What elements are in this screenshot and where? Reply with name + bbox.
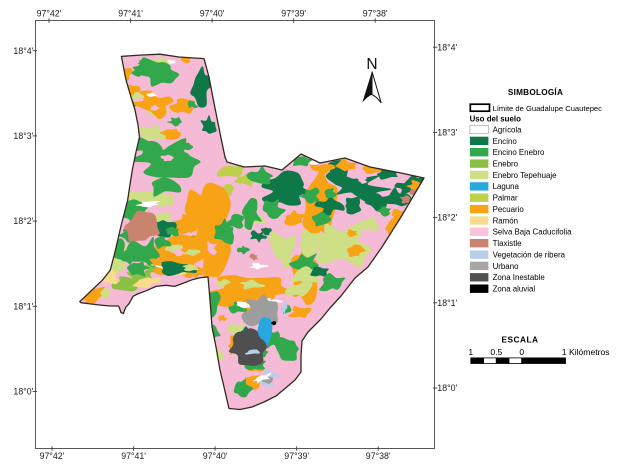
svg-text:97°38': 97°38' xyxy=(363,9,388,19)
svg-text:97°42': 97°42' xyxy=(40,451,65,461)
svg-text:97°38': 97°38' xyxy=(366,451,391,461)
svg-text:Agrícola: Agrícola xyxy=(493,125,523,134)
svg-text:1 Kilómetros: 1 Kilómetros xyxy=(562,347,610,357)
svg-text:97°41': 97°41' xyxy=(118,9,143,19)
svg-text:18°3': 18°3' xyxy=(13,131,33,141)
svg-text:Pecuario: Pecuario xyxy=(493,205,525,214)
svg-text:18°2': 18°2' xyxy=(437,213,457,223)
svg-text:Límite de Guadalupe Cuautepec: Límite de Guadalupe Cuautepec xyxy=(493,104,603,113)
svg-text:18°4': 18°4' xyxy=(13,46,33,56)
svg-text:18°1': 18°1' xyxy=(13,301,33,311)
svg-text:Zona Inestable: Zona Inestable xyxy=(493,273,546,282)
svg-text:Ramón: Ramón xyxy=(493,216,518,225)
svg-text:ESCALA: ESCALA xyxy=(501,335,538,345)
svg-text:18°2': 18°2' xyxy=(13,216,33,226)
svg-text:Uso del suelo: Uso del suelo xyxy=(470,114,521,123)
svg-text:97°41': 97°41' xyxy=(121,451,146,461)
svg-text:1: 1 xyxy=(468,347,473,357)
svg-text:18°4': 18°4' xyxy=(437,42,457,52)
svg-text:97°40': 97°40' xyxy=(203,451,228,461)
svg-text:Tlaxistle: Tlaxistle xyxy=(493,239,523,248)
svg-text:Urbano: Urbano xyxy=(493,262,519,271)
svg-text:Enebro Tepehuaje: Enebro Tepehuaje xyxy=(493,171,558,180)
svg-text:N: N xyxy=(366,56,377,73)
svg-text:Zona aluvial: Zona aluvial xyxy=(493,285,536,294)
svg-text:18°1': 18°1' xyxy=(437,298,457,308)
svg-text:18°0': 18°0' xyxy=(437,383,457,393)
svg-text:Vegetación de ribera: Vegetación de ribera xyxy=(493,251,566,260)
svg-text:Selva Baja Caducifolia: Selva Baja Caducifolia xyxy=(493,228,573,237)
svg-text:Palmar: Palmar xyxy=(493,194,518,203)
svg-text:Laguna: Laguna xyxy=(493,182,520,191)
svg-text:18°3': 18°3' xyxy=(437,128,457,138)
svg-text:0.5: 0.5 xyxy=(490,347,502,357)
svg-text:SIMBOLOGÍA: SIMBOLOGÍA xyxy=(508,87,563,97)
svg-text:Enebro: Enebro xyxy=(493,160,519,169)
svg-text:0: 0 xyxy=(519,347,524,357)
svg-text:97°39': 97°39' xyxy=(284,451,309,461)
svg-text:97°40': 97°40' xyxy=(200,9,225,19)
svg-text:Encino Enebro: Encino Enebro xyxy=(493,148,545,157)
svg-text:18°0': 18°0' xyxy=(13,387,33,397)
svg-text:97°42': 97°42' xyxy=(37,9,62,19)
svg-text:Encino: Encino xyxy=(493,137,518,146)
svg-text:97°39': 97°39' xyxy=(281,9,306,19)
